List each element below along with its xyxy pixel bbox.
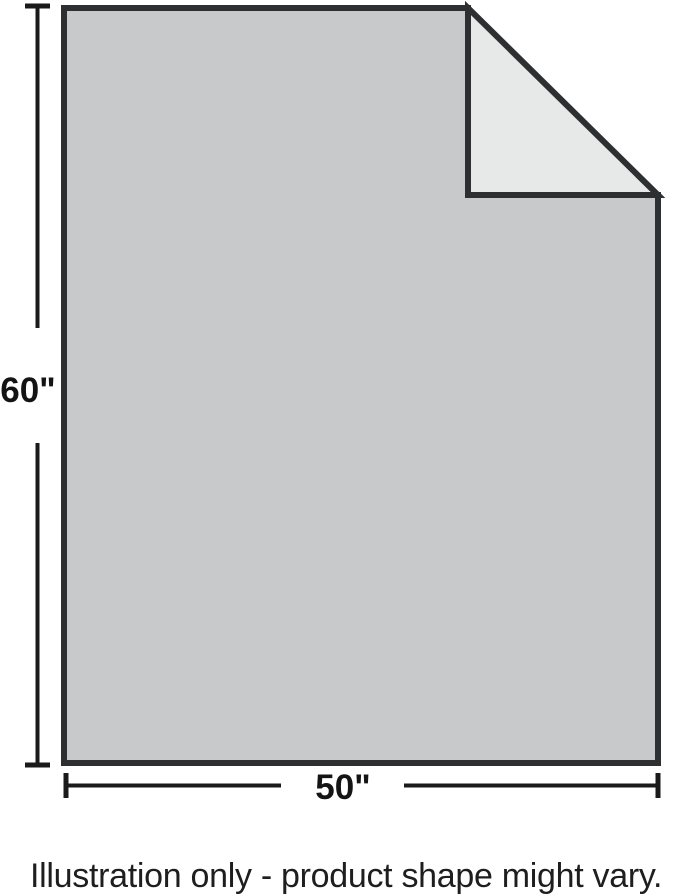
disclaimer-caption: Illustration only - product shape might …	[30, 857, 679, 896]
height-dimension-label: 60"	[0, 371, 56, 410]
product-dimension-illustration: 60" 50" Illustration only - product shap…	[0, 0, 679, 896]
width-dimension-label: 50"	[315, 768, 371, 807]
illustration-canvas: 60" 50"	[0, 0, 679, 896]
folded-corner-flap	[468, 8, 658, 195]
